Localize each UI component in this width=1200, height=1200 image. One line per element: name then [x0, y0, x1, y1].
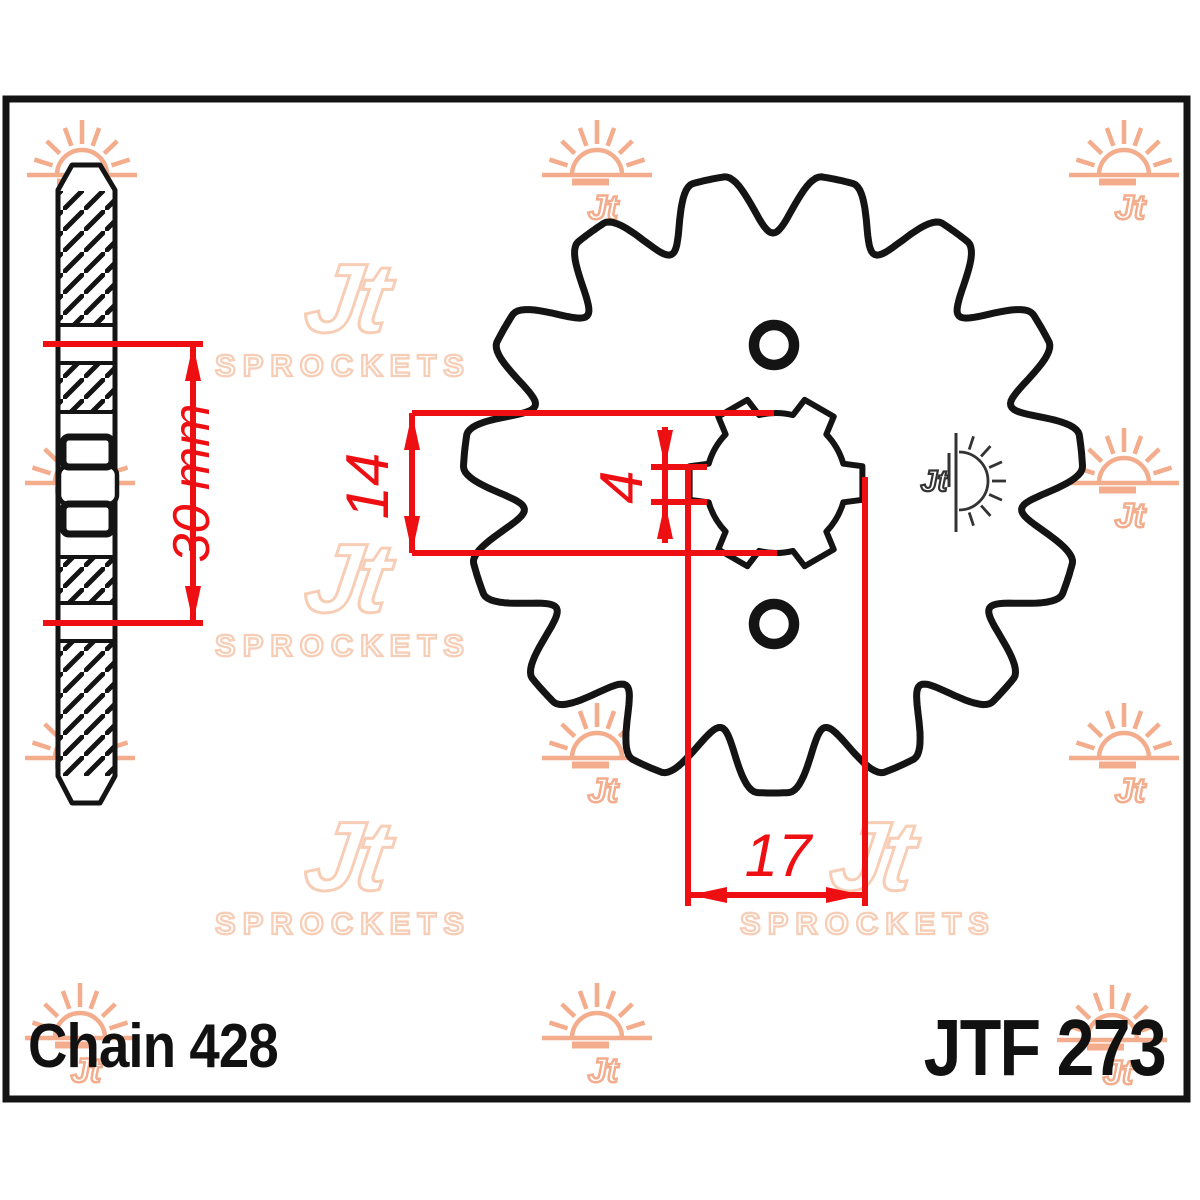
- svg-text:Jt: Jt: [1115, 772, 1147, 810]
- svg-text:Jt: Jt: [588, 772, 620, 810]
- svg-text:Jt: Jt: [299, 523, 402, 632]
- svg-text:SPROCKETS: SPROCKETS: [215, 628, 471, 663]
- part-number-label: JTF 273: [924, 1008, 1165, 1088]
- front-view-sprocket: [464, 177, 1083, 793]
- svg-text:Jt: Jt: [1115, 189, 1147, 227]
- dimension-14-label: 14: [338, 453, 398, 520]
- jt-sun-watermark: Jt: [542, 983, 652, 1090]
- dimension-30mm-label: 30 mm: [166, 404, 218, 563]
- jt-sprockets-watermark: JtSPROCKETS: [215, 801, 471, 941]
- svg-text:SPROCKETS: SPROCKETS: [215, 906, 471, 941]
- jt-sun-watermark: Jt: [542, 120, 652, 227]
- jt-sun-watermark: Jt: [1069, 703, 1179, 810]
- svg-text:SPROCKETS: SPROCKETS: [740, 906, 996, 941]
- chain-size-label: Chain 428: [28, 1016, 278, 1078]
- dimension-4-label: 4: [592, 470, 652, 503]
- svg-text:Jt: Jt: [921, 465, 950, 498]
- dimension-17-label: 17: [745, 826, 812, 886]
- jt-sun-watermark: Jt: [1069, 428, 1179, 535]
- side-view-section: [58, 165, 117, 803]
- jt-sun-watermark: Jt: [1069, 120, 1179, 227]
- sprocket-technical-drawing: JtJtJtJtJtJtJtJtJtJtJtJtJtSPROCKETSJtSPR…: [0, 0, 1200, 1200]
- jt-sprockets-watermark: JtSPROCKETS: [215, 243, 471, 383]
- jt-sprockets-watermark: JtSPROCKETS: [215, 523, 471, 663]
- svg-text:Jt: Jt: [299, 243, 402, 352]
- svg-text:Jt: Jt: [588, 1052, 620, 1090]
- svg-text:Jt: Jt: [299, 801, 402, 910]
- svg-text:SPROCKETS: SPROCKETS: [215, 348, 471, 383]
- svg-text:Jt: Jt: [1115, 497, 1147, 535]
